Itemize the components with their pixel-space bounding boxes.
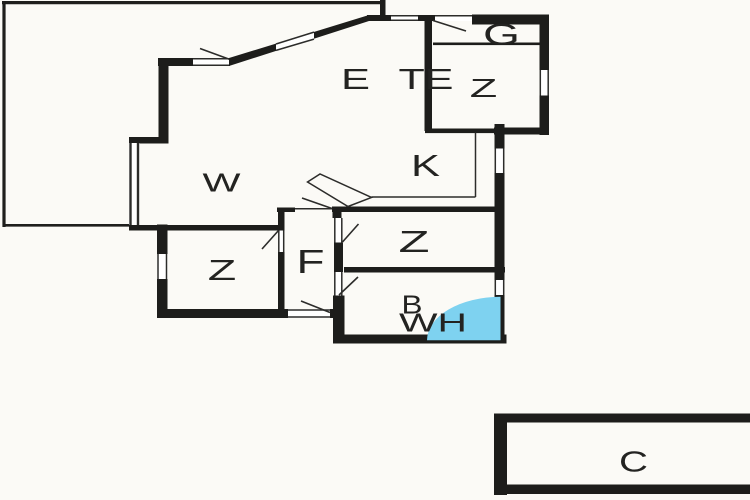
svg-text:G: G <box>483 19 520 52</box>
svg-text:Z: Z <box>208 255 237 287</box>
svg-text:TE: TE <box>399 64 454 96</box>
svg-text:WH: WH <box>399 308 467 338</box>
svg-text:F: F <box>297 243 325 280</box>
svg-text:Z: Z <box>399 224 430 259</box>
svg-text:C: C <box>619 447 648 479</box>
svg-text:E: E <box>341 64 370 96</box>
svg-text:W: W <box>203 168 242 198</box>
svg-text:Z: Z <box>470 73 498 103</box>
svg-text:K: K <box>411 148 440 183</box>
